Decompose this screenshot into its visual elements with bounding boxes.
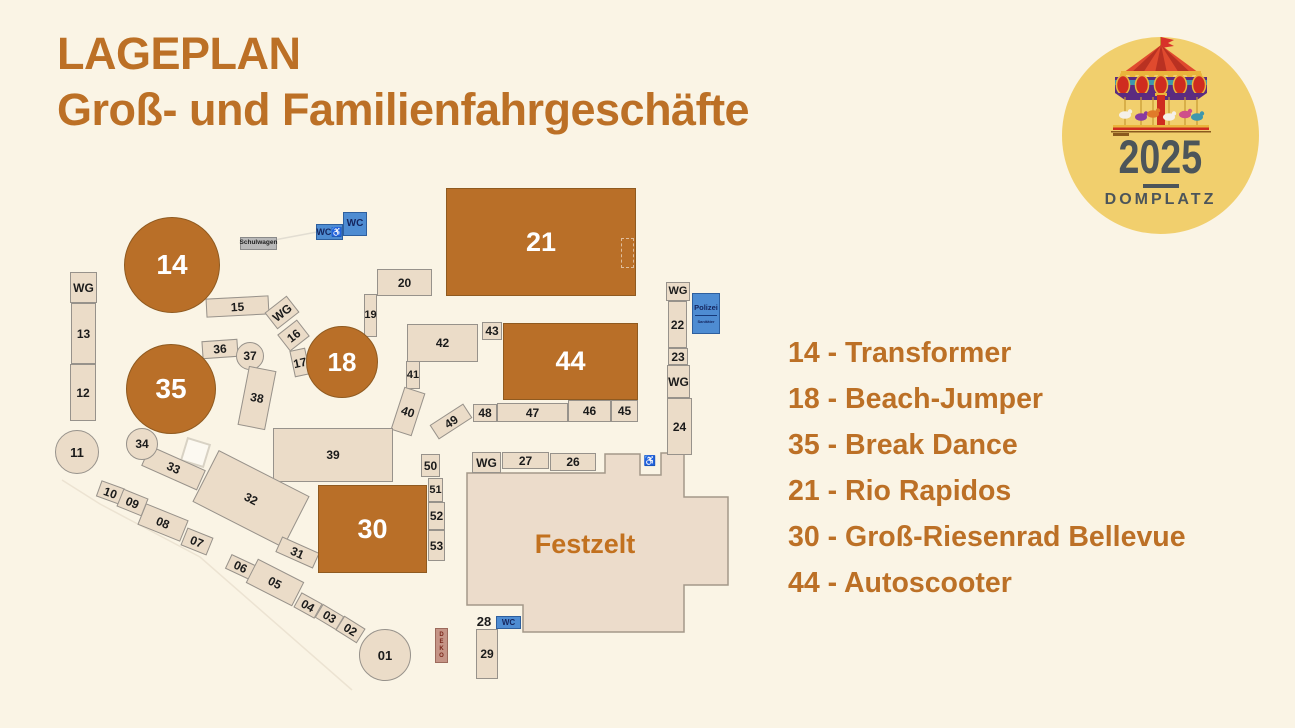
plot-48: 48	[473, 404, 497, 422]
plot-22: 22	[668, 301, 687, 348]
plot-01: 01	[359, 629, 411, 681]
plot-36: 36	[201, 339, 238, 359]
plot-41: 41	[406, 361, 420, 389]
festzelt-label: Festzelt	[520, 529, 650, 560]
plot-14: 14	[124, 217, 220, 313]
plot-13: 13	[71, 303, 96, 364]
plot-53: 53	[428, 530, 445, 561]
wc-box: WC	[343, 212, 367, 236]
schulwagen-box: Schulwagen	[240, 237, 277, 250]
plot-52: 52	[428, 502, 445, 530]
plot-15: 15	[206, 295, 270, 317]
plot-34: 34	[126, 428, 158, 460]
plot-30: 30	[318, 485, 427, 573]
plot-19: 19	[364, 294, 377, 337]
plot-11: 11	[55, 430, 99, 474]
plot-42: 42	[407, 324, 478, 362]
dashed-area	[621, 238, 634, 268]
wheelchair-icon: ♿	[642, 455, 658, 469]
plot-29: 29	[476, 629, 498, 679]
plot-27: 27	[502, 452, 549, 469]
plot-20: 20	[377, 269, 432, 296]
slide: LAGEPLAN Groß- und Familienfahrgeschäfte	[0, 0, 1295, 728]
plot-28: 28	[472, 613, 496, 629]
plot-46: 46	[568, 400, 611, 422]
plot-45: 45	[611, 400, 638, 422]
plot-26: 26	[550, 453, 596, 471]
plot-12: 12	[70, 364, 96, 421]
plot-39: 39	[273, 428, 393, 482]
plot-wg: WG	[667, 365, 690, 398]
police-box: Polizei Sanitäter	[692, 293, 720, 334]
plot-wg: WG	[70, 272, 97, 303]
plot-47: 47	[497, 403, 568, 422]
plot-wg: WG	[666, 282, 690, 301]
path-boundary-line	[62, 480, 352, 690]
wc-box: WC	[496, 616, 521, 629]
police-divider	[695, 315, 717, 316]
plot-35: 35	[126, 344, 216, 434]
deko-box: DEKO	[435, 628, 448, 663]
wc-accessible-box: WC♿	[316, 224, 343, 240]
plot-18: 18	[306, 326, 378, 398]
plot-44: 44	[503, 323, 638, 400]
plot-50: 50	[421, 454, 440, 477]
plot-23: 23	[668, 348, 688, 365]
plot-24: 24	[667, 398, 692, 455]
plot-51: 51	[428, 478, 443, 502]
police-sublabel: Sanitäter	[697, 319, 714, 324]
plot-wg: WG	[472, 452, 501, 473]
police-label: Polizei	[694, 303, 718, 312]
plot-21: 21	[446, 188, 636, 296]
plot-43: 43	[482, 322, 502, 340]
